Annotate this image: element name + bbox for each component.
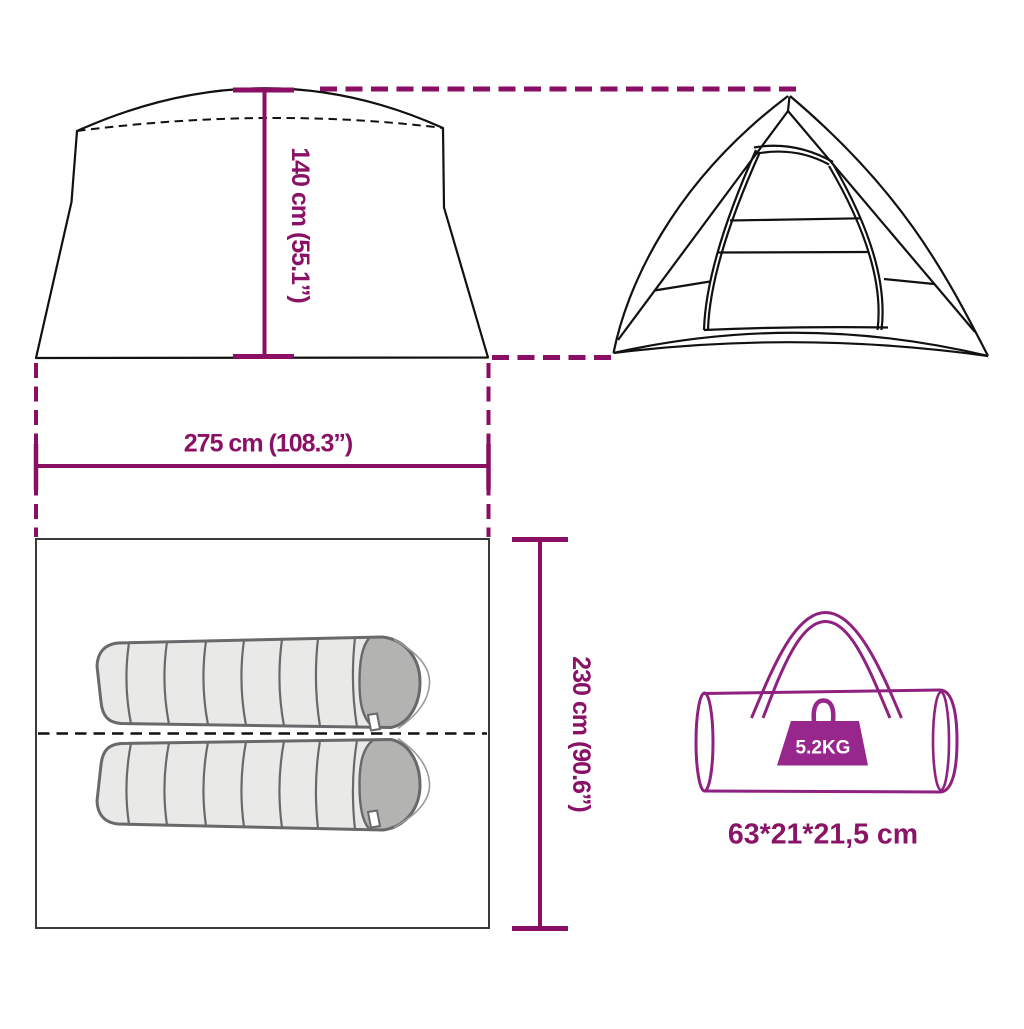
svg-text:230 cm (90.6”): 230 cm (90.6”) bbox=[567, 656, 595, 812]
svg-text:5.2KG: 5.2KG bbox=[796, 738, 851, 759]
svg-text:275 cm (108.3”): 275 cm (108.3”) bbox=[184, 430, 353, 458]
svg-text:140 cm (55.1”): 140 cm (55.1”) bbox=[286, 147, 314, 303]
svg-text:63*21*21,5 cm: 63*21*21,5 cm bbox=[728, 819, 918, 851]
